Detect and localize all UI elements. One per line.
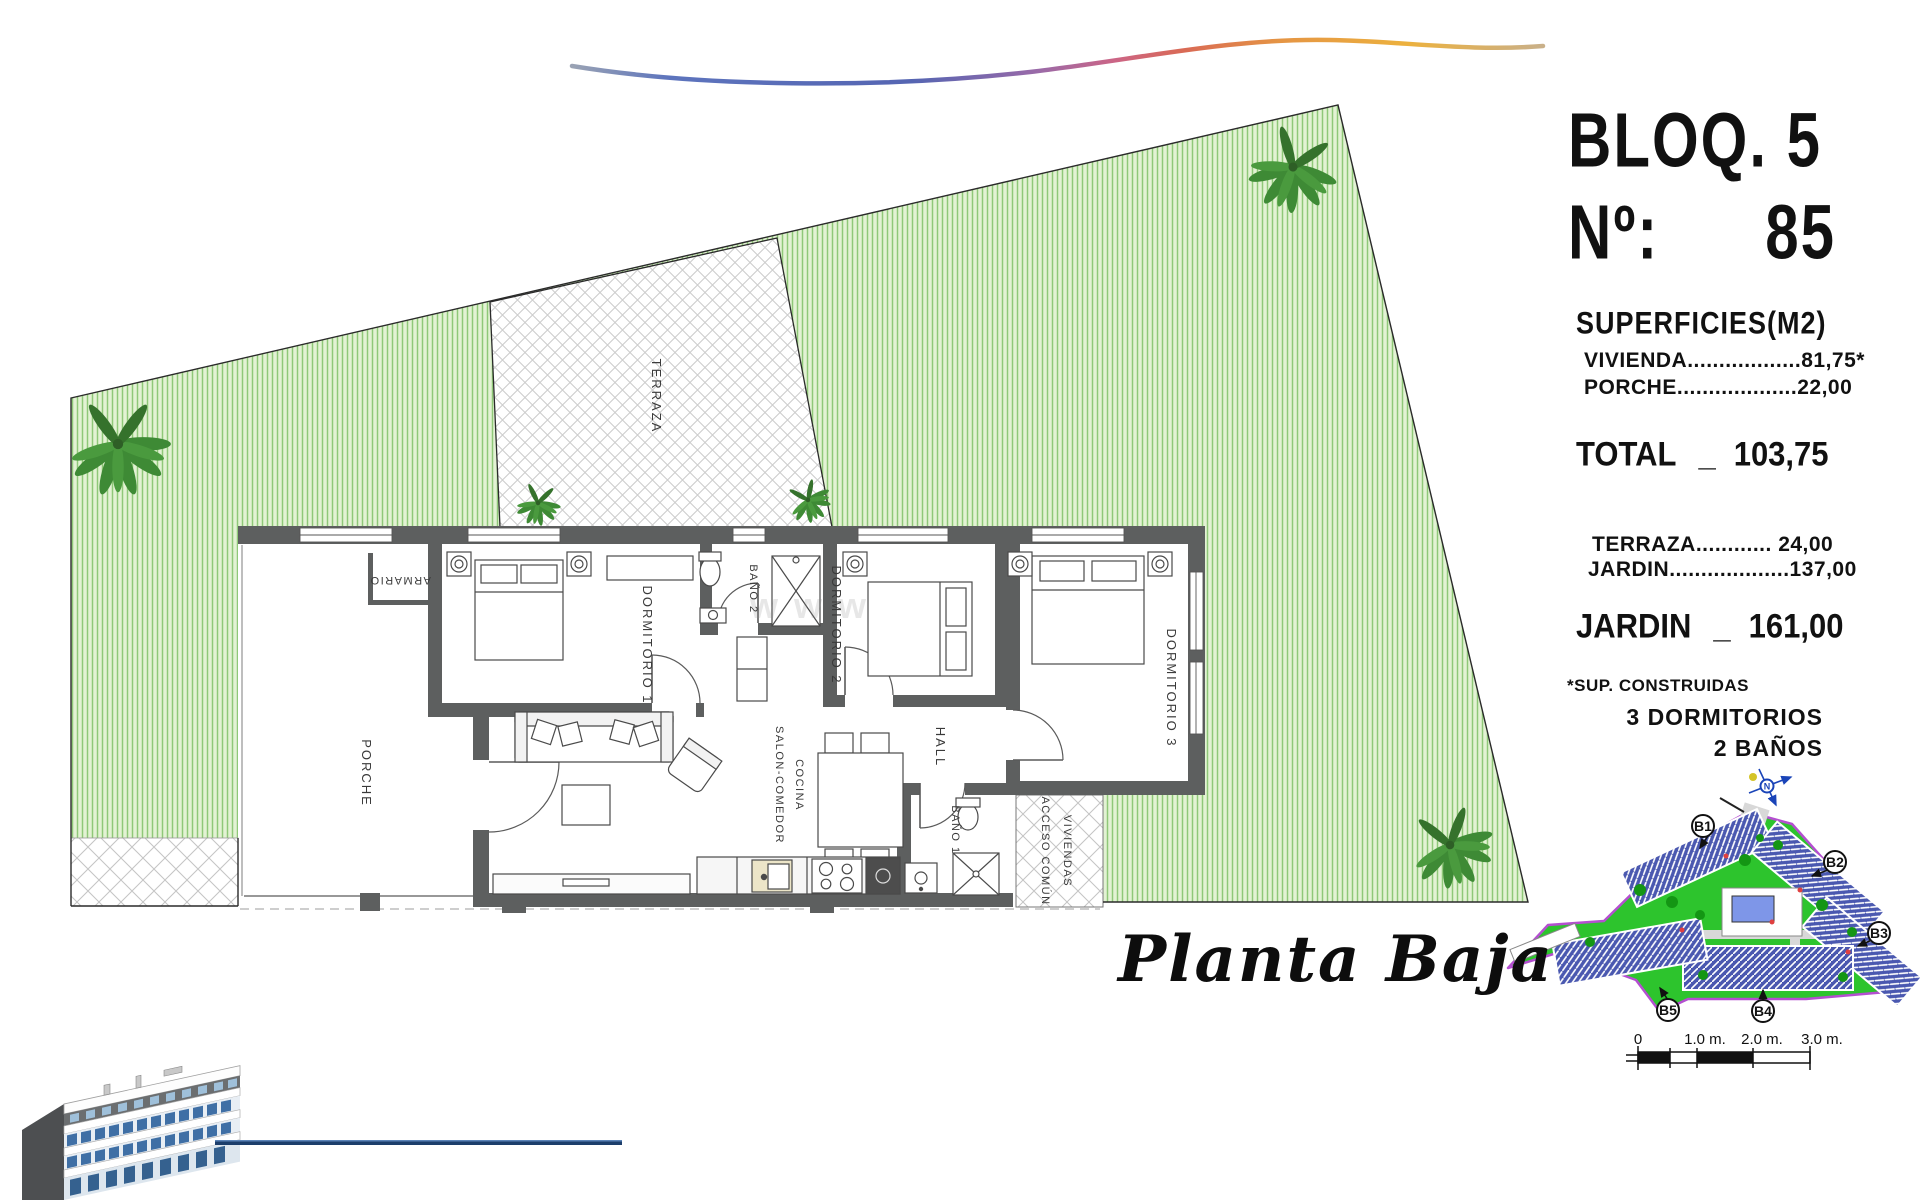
- map-label-b4: B4: [1754, 1003, 1772, 1019]
- accent-line: [215, 1141, 622, 1145]
- map-pool: [1732, 896, 1774, 922]
- footnote: *SUP. CONSTRUIDAS: [1567, 676, 1749, 696]
- total-label: JARDIN: [1576, 606, 1691, 646]
- site-plan: www TERRAZA PORCHE ARMARIO DORMITORIO 1 …: [70, 105, 1528, 913]
- building-render: [22, 1054, 622, 1200]
- total-separator: _: [1698, 434, 1715, 474]
- surface-row-vivienda: VIVIENDA..................81,75*: [1584, 349, 1865, 373]
- unit-number-row: Nº: 85: [1568, 188, 1836, 276]
- label-dormitorio-2: DORMITORIO 2: [829, 565, 844, 684]
- hatch-strip: [71, 838, 238, 906]
- label-salon-comedor: SALON-COMEDOR: [773, 726, 785, 844]
- feature-bathrooms: 2 BAÑOS: [1626, 733, 1823, 764]
- features-block: 3 DORMITORIOS 2 BAÑOS: [1626, 702, 1823, 764]
- row-value: 24,00: [1778, 533, 1833, 556]
- label-acceso-comun: ACCESO COMÚN: [1039, 796, 1052, 905]
- total-separator: _: [1713, 606, 1730, 646]
- feature-bedrooms: 3 DORMITORIOS: [1626, 702, 1823, 733]
- compass-north-label: N: [1764, 782, 1771, 792]
- unit-number-label: Nº:: [1568, 188, 1659, 276]
- surface-row-porche: PORCHE...................22,00: [1584, 376, 1852, 400]
- row-label: JARDIN: [1588, 558, 1669, 581]
- map-label-b2: B2: [1826, 854, 1844, 870]
- floor-plan-page: www TERRAZA PORCHE ARMARIO DORMITORIO 1 …: [0, 0, 1920, 1200]
- block-title: BLOQ. 5: [1568, 96, 1822, 184]
- exterior-row-terraza: TERRAZA............ 24,00: [1592, 533, 1833, 557]
- total-label: TOTAL: [1576, 434, 1676, 474]
- jardin-total-row: JARDIN _ 161,00: [1576, 606, 1843, 646]
- map-label-b3: B3: [1870, 925, 1888, 941]
- row-label: TERRAZA: [1592, 533, 1696, 556]
- accent-line-highlight: [215, 1140, 622, 1142]
- map-label-b5: B5: [1659, 1002, 1677, 1018]
- surfaces-total-row: TOTAL _ 103,75: [1576, 434, 1829, 474]
- scale-3m: 3.0 m.: [1801, 1031, 1843, 1048]
- map-label-b1: B1: [1694, 818, 1712, 834]
- acceso-area: [1016, 795, 1103, 907]
- label-dormitorio-1: DORMITORIO 1: [640, 585, 655, 704]
- row-dots: ..................: [1687, 349, 1801, 372]
- row-value: 22,00: [1797, 376, 1852, 399]
- brand-swoosh: [572, 40, 1543, 84]
- label-dormitorio-3: DORMITORIO 3: [1164, 628, 1179, 747]
- row-dots: ...................: [1669, 558, 1789, 581]
- label-bano-1: BAÑO 1: [949, 805, 962, 854]
- row-value: 137,00: [1790, 558, 1857, 581]
- scale-1m: 1.0 m.: [1684, 1031, 1726, 1048]
- site-map: B1 B2 B3 B4 B5 N: [1508, 769, 1920, 1022]
- row-label: PORCHE: [1584, 376, 1677, 399]
- total-value: 103,75: [1734, 434, 1829, 474]
- unit-number-value: 85: [1765, 188, 1836, 276]
- label-bano-2: BAÑO 2: [747, 564, 760, 613]
- label-viviendas: VIVIENDAS: [1061, 815, 1073, 887]
- row-dots: ...................: [1677, 376, 1797, 399]
- total-value: 161,00: [1749, 606, 1844, 646]
- label-hall: HALL: [933, 727, 948, 768]
- exterior-row-jardin: JARDIN...................137,00: [1588, 558, 1857, 582]
- label-armario: ARMARIO: [369, 574, 431, 586]
- row-value: 81,75*: [1801, 349, 1865, 372]
- scale-2m: 2.0 m.: [1741, 1031, 1783, 1048]
- scale-bar: 0 1.0 m. 2.0 m. 3.0 m.: [1626, 1031, 1843, 1070]
- watermark: www: [749, 585, 882, 626]
- row-dots: ............: [1696, 533, 1772, 556]
- plan-title: Planta Baja: [1118, 922, 1554, 997]
- compass-icon: N: [1749, 769, 1791, 805]
- surfaces-title: SUPERFICIES(M2): [1576, 306, 1827, 342]
- map-entrance-mark: [1720, 798, 1744, 812]
- label-terraza: TERRAZA: [649, 359, 664, 434]
- label-cocina: COCINA: [793, 759, 805, 811]
- scale-0: 0: [1634, 1031, 1642, 1048]
- label-porche: PORCHE: [359, 739, 374, 807]
- row-label: VIVIENDA: [1584, 349, 1687, 372]
